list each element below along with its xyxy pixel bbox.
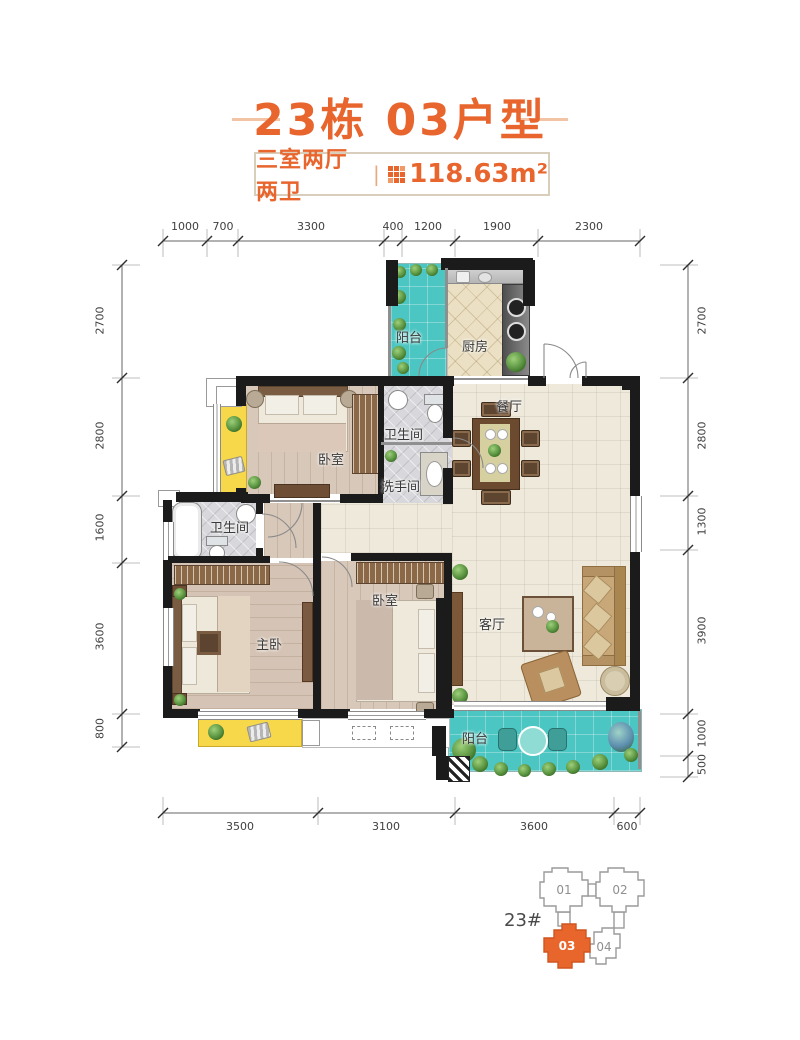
dim-right: 2700 <box>696 299 709 343</box>
plant <box>488 444 501 457</box>
plate <box>497 463 508 474</box>
bed-runner <box>197 631 221 655</box>
plant <box>506 352 526 372</box>
wall <box>256 500 263 514</box>
plant <box>248 476 261 489</box>
ac-box <box>302 720 320 746</box>
plant <box>174 694 186 706</box>
unit-label-02: 02 <box>606 883 634 897</box>
room-label-bath-master: 卫生间 <box>210 517 249 536</box>
ac-unit-mark <box>352 726 376 740</box>
wall <box>454 378 528 380</box>
ac-unit-mark <box>390 726 414 740</box>
sofa <box>582 566 626 666</box>
room-label-kitchen: 厨房 <box>462 336 488 355</box>
dresser <box>274 484 330 498</box>
wall <box>441 258 533 270</box>
plant <box>208 724 224 740</box>
spec-box: 三室两厅两卫 | 118.63m² <box>254 152 550 196</box>
dining-chair <box>481 490 511 505</box>
plant <box>174 588 186 600</box>
wall <box>424 709 454 718</box>
toilet <box>427 404 443 423</box>
wall <box>163 560 172 608</box>
dim-right: 3900 <box>696 609 709 653</box>
wall <box>443 384 453 438</box>
dim-bottom: 3500 <box>218 820 262 833</box>
bed-blanket <box>356 600 393 700</box>
window <box>630 496 642 552</box>
dim-left: 2700 <box>94 299 107 343</box>
pillow <box>265 395 299 415</box>
dining-chair <box>521 430 540 447</box>
wall <box>444 553 452 600</box>
wall <box>432 726 446 756</box>
dim-right: 500 <box>696 743 709 787</box>
room-label-bedroom-top: 卧室 <box>318 449 344 468</box>
room-label-balcony-bottom: 阳台 <box>462 728 488 747</box>
balcony-chair <box>498 728 517 751</box>
plant <box>397 362 409 374</box>
wall <box>351 553 452 561</box>
sofa-pillow <box>583 575 613 605</box>
washbasin <box>388 390 408 410</box>
wall <box>388 306 391 378</box>
plate <box>485 429 496 440</box>
master-hall-floor <box>264 503 313 558</box>
window <box>163 522 174 560</box>
room-label-bath-top: 卫生间 <box>384 424 423 443</box>
room-label-washroom: 洗手间 <box>381 476 420 495</box>
plant <box>392 346 406 360</box>
room-label-balcony-top: 阳台 <box>396 327 422 346</box>
wall <box>606 697 640 711</box>
wall <box>298 709 350 718</box>
plant <box>426 264 438 276</box>
wall <box>630 384 640 496</box>
washbasin <box>426 461 443 487</box>
plant <box>472 756 488 772</box>
dim-left: 800 <box>94 707 107 751</box>
kitchen-sink <box>456 271 470 283</box>
wall <box>236 378 246 406</box>
kitchen-pot <box>478 272 492 283</box>
window <box>454 701 606 711</box>
bed-blanket <box>258 423 346 452</box>
dim-right: 1300 <box>696 500 709 544</box>
floorplan-page: 23栋 03户型 三室两厅两卫 | 118.63m² 1000 700 3300… <box>0 0 800 1040</box>
plate <box>532 606 544 618</box>
building-number-label: 23# <box>504 910 542 931</box>
nightstand <box>246 390 264 408</box>
unit-label-04: 04 <box>590 940 618 954</box>
dim-top: 1200 <box>406 220 450 233</box>
wall <box>176 492 248 502</box>
wall <box>236 376 383 386</box>
area-grid-icon <box>388 166 401 183</box>
balcony-chair <box>548 728 567 751</box>
plant <box>452 564 468 580</box>
bathtub <box>172 502 202 560</box>
dim-top: 2300 <box>567 220 611 233</box>
dim-top: 700 <box>201 220 245 233</box>
wall <box>386 260 398 306</box>
page-title: 23栋 03户型 <box>0 84 800 148</box>
dining-chair <box>521 460 540 477</box>
bed-blanket <box>217 596 250 692</box>
room-label-living: 客厅 <box>479 614 505 633</box>
wall <box>163 500 172 522</box>
layout-spec: 三室两厅两卫 <box>256 142 365 206</box>
plate <box>485 463 496 474</box>
wall <box>630 552 640 701</box>
threshold <box>270 500 340 502</box>
balcony-table <box>518 726 548 756</box>
dim-bottom: 3600 <box>512 820 556 833</box>
bed <box>356 600 446 702</box>
window <box>348 711 426 720</box>
plant <box>226 416 242 432</box>
dim-top: 1900 <box>475 220 519 233</box>
plate <box>497 429 508 440</box>
pillow <box>418 609 435 649</box>
dim-bottom: 600 <box>605 820 649 833</box>
ac-ledge <box>302 718 450 748</box>
wardrobe <box>356 562 446 584</box>
plant <box>546 620 559 633</box>
wall <box>638 711 641 769</box>
spec-divider: | <box>373 162 380 186</box>
wall <box>436 756 448 780</box>
stove-burner <box>507 322 526 341</box>
wall <box>163 709 200 718</box>
wall <box>523 260 535 306</box>
hall-floor <box>321 503 452 553</box>
plant <box>624 748 638 762</box>
nightstand <box>416 584 434 599</box>
plant <box>592 754 608 770</box>
window <box>198 711 300 720</box>
wardrobe <box>174 565 270 585</box>
room-label-master: 主卧 <box>256 634 282 653</box>
window <box>213 404 221 492</box>
wall <box>445 268 448 348</box>
plant <box>494 762 508 776</box>
dim-right: 2800 <box>696 414 709 458</box>
pillow <box>418 653 435 693</box>
dim-left: 2800 <box>94 414 107 458</box>
room-label-dining: 餐厅 <box>496 396 522 415</box>
armchair-pillow <box>538 666 566 694</box>
plant <box>542 762 556 776</box>
unit-label-03: 03 <box>553 939 581 953</box>
window <box>163 608 174 666</box>
wardrobe <box>352 394 380 474</box>
sofa-pillow <box>583 603 613 633</box>
wall <box>168 556 270 563</box>
wall <box>340 494 383 503</box>
plant <box>410 264 422 276</box>
bed <box>258 386 348 452</box>
bed <box>172 596 250 694</box>
pillow <box>182 647 197 685</box>
wall <box>313 503 321 709</box>
wall <box>582 376 624 386</box>
dim-left: 3600 <box>94 615 107 659</box>
plant <box>385 450 397 462</box>
wall <box>528 376 546 386</box>
room-label-bedroom-second: 卧室 <box>372 590 398 609</box>
unit-label-01: 01 <box>550 883 578 897</box>
dim-bottom: 3100 <box>364 820 408 833</box>
area-value: 118.63m² <box>409 159 548 189</box>
wall <box>443 468 453 504</box>
shaft-hatch <box>448 756 470 782</box>
dim-top: 3300 <box>289 220 333 233</box>
sofa-back <box>614 566 626 666</box>
pillow <box>182 604 197 642</box>
plant <box>566 760 580 774</box>
wall <box>436 598 452 710</box>
tv-panel <box>302 602 313 682</box>
dining-chair <box>452 460 471 477</box>
plant <box>518 764 531 777</box>
dim-left: 1600 <box>94 506 107 550</box>
pillow <box>303 395 337 415</box>
dining-chair <box>452 430 471 447</box>
side-table <box>600 666 630 696</box>
